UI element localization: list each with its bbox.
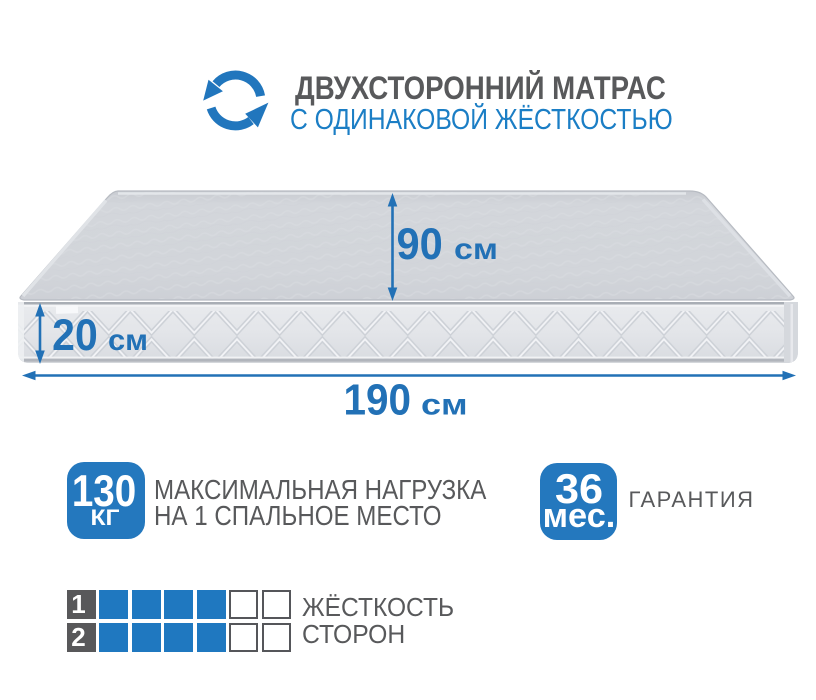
svg-text:см: см bbox=[454, 232, 498, 266]
svg-text:см: см bbox=[108, 323, 148, 356]
svg-text:20: 20 bbox=[52, 310, 98, 360]
svg-text:см: см bbox=[421, 388, 468, 421]
svg-text:90: 90 bbox=[397, 220, 443, 270]
svg-text:190: 190 bbox=[344, 375, 412, 424]
